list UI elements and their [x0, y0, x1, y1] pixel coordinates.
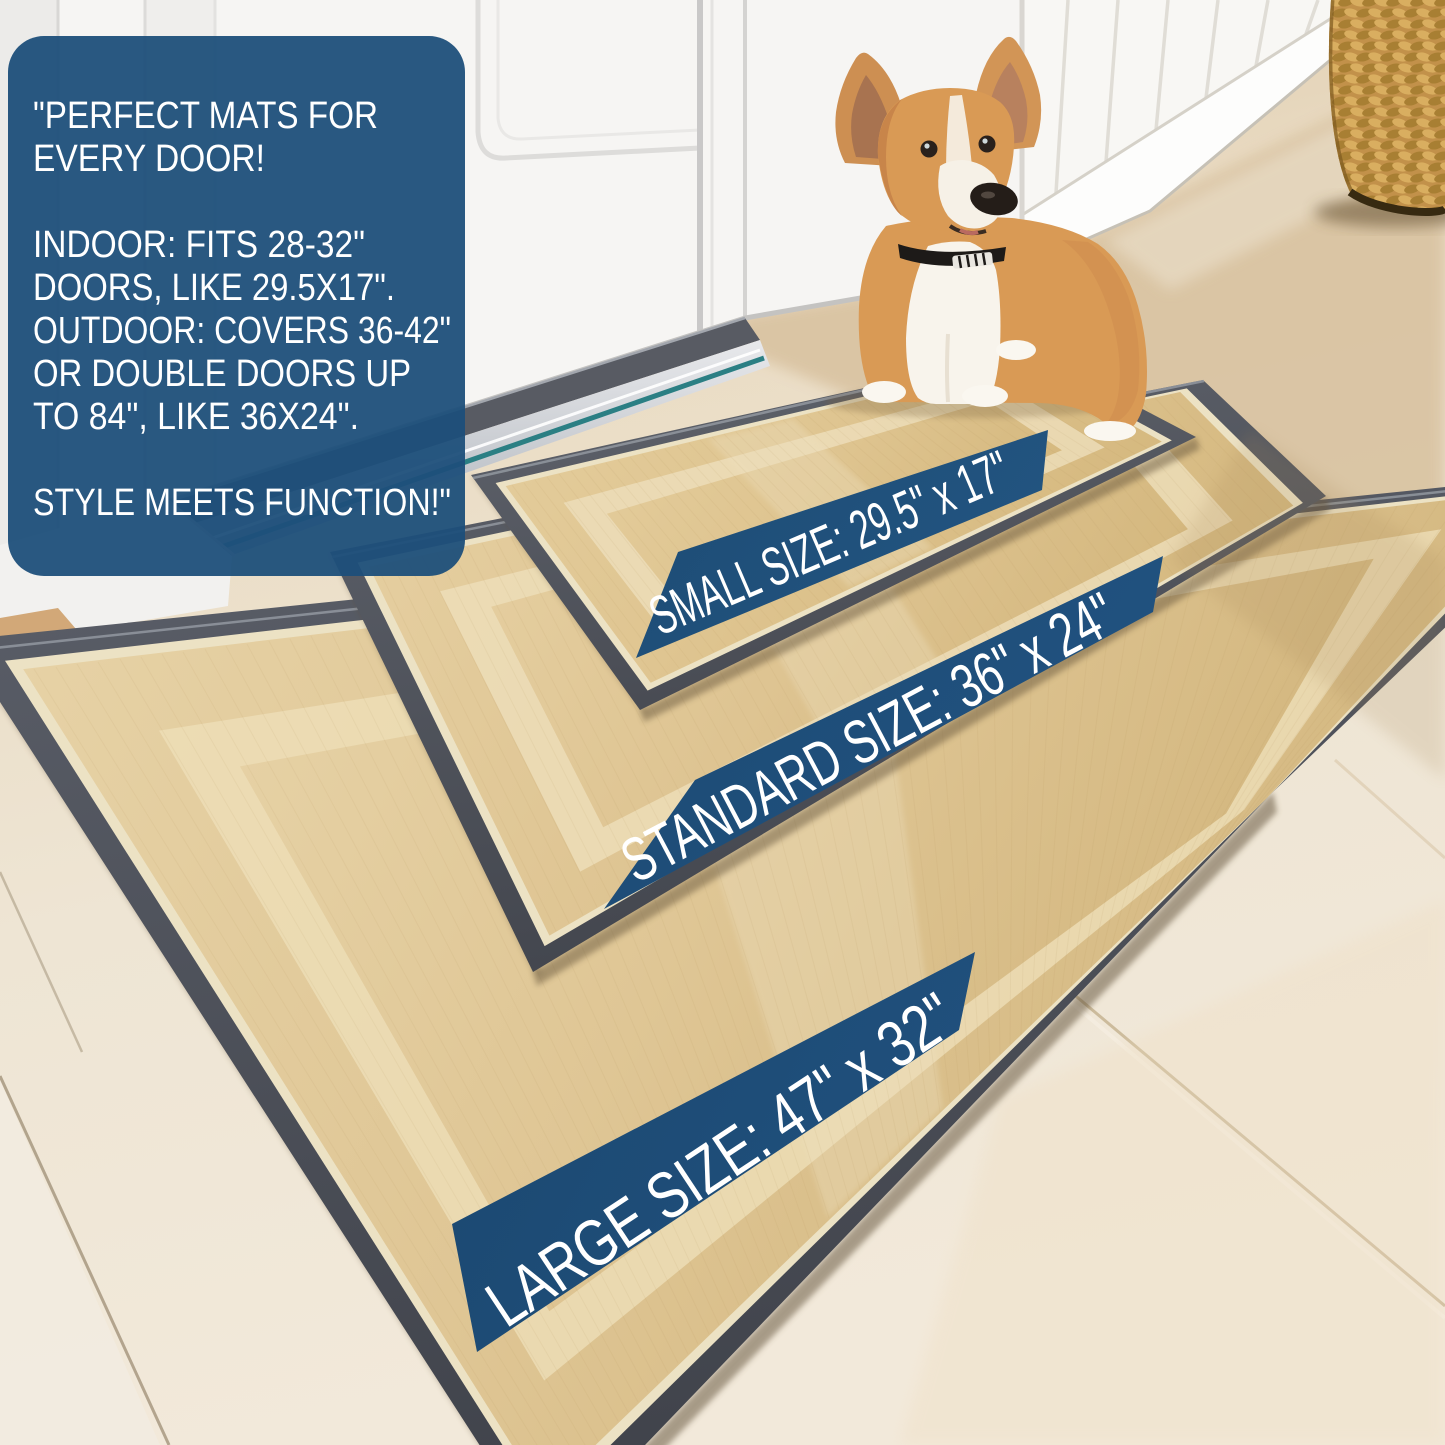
svg-text:DOORS, LIKE 29.5X17".: DOORS, LIKE 29.5X17". — [33, 267, 395, 309]
svg-text:OUTDOOR: COVERS 36-42": OUTDOOR: COVERS 36-42" — [33, 310, 451, 352]
svg-text:STYLE MEETS FUNCTION!": STYLE MEETS FUNCTION!" — [33, 482, 451, 524]
svg-text:TO 84", LIKE 36X24".: TO 84", LIKE 36X24". — [33, 396, 359, 438]
svg-text:"PERFECT MATS FOR: "PERFECT MATS FOR — [33, 95, 378, 137]
svg-text:EVERY DOOR!: EVERY DOOR! — [33, 138, 265, 180]
svg-text:INDOOR: FITS 28-32": INDOOR: FITS 28-32" — [33, 224, 365, 266]
svg-text:OR DOUBLE DOORS UP: OR DOUBLE DOORS UP — [33, 353, 411, 395]
